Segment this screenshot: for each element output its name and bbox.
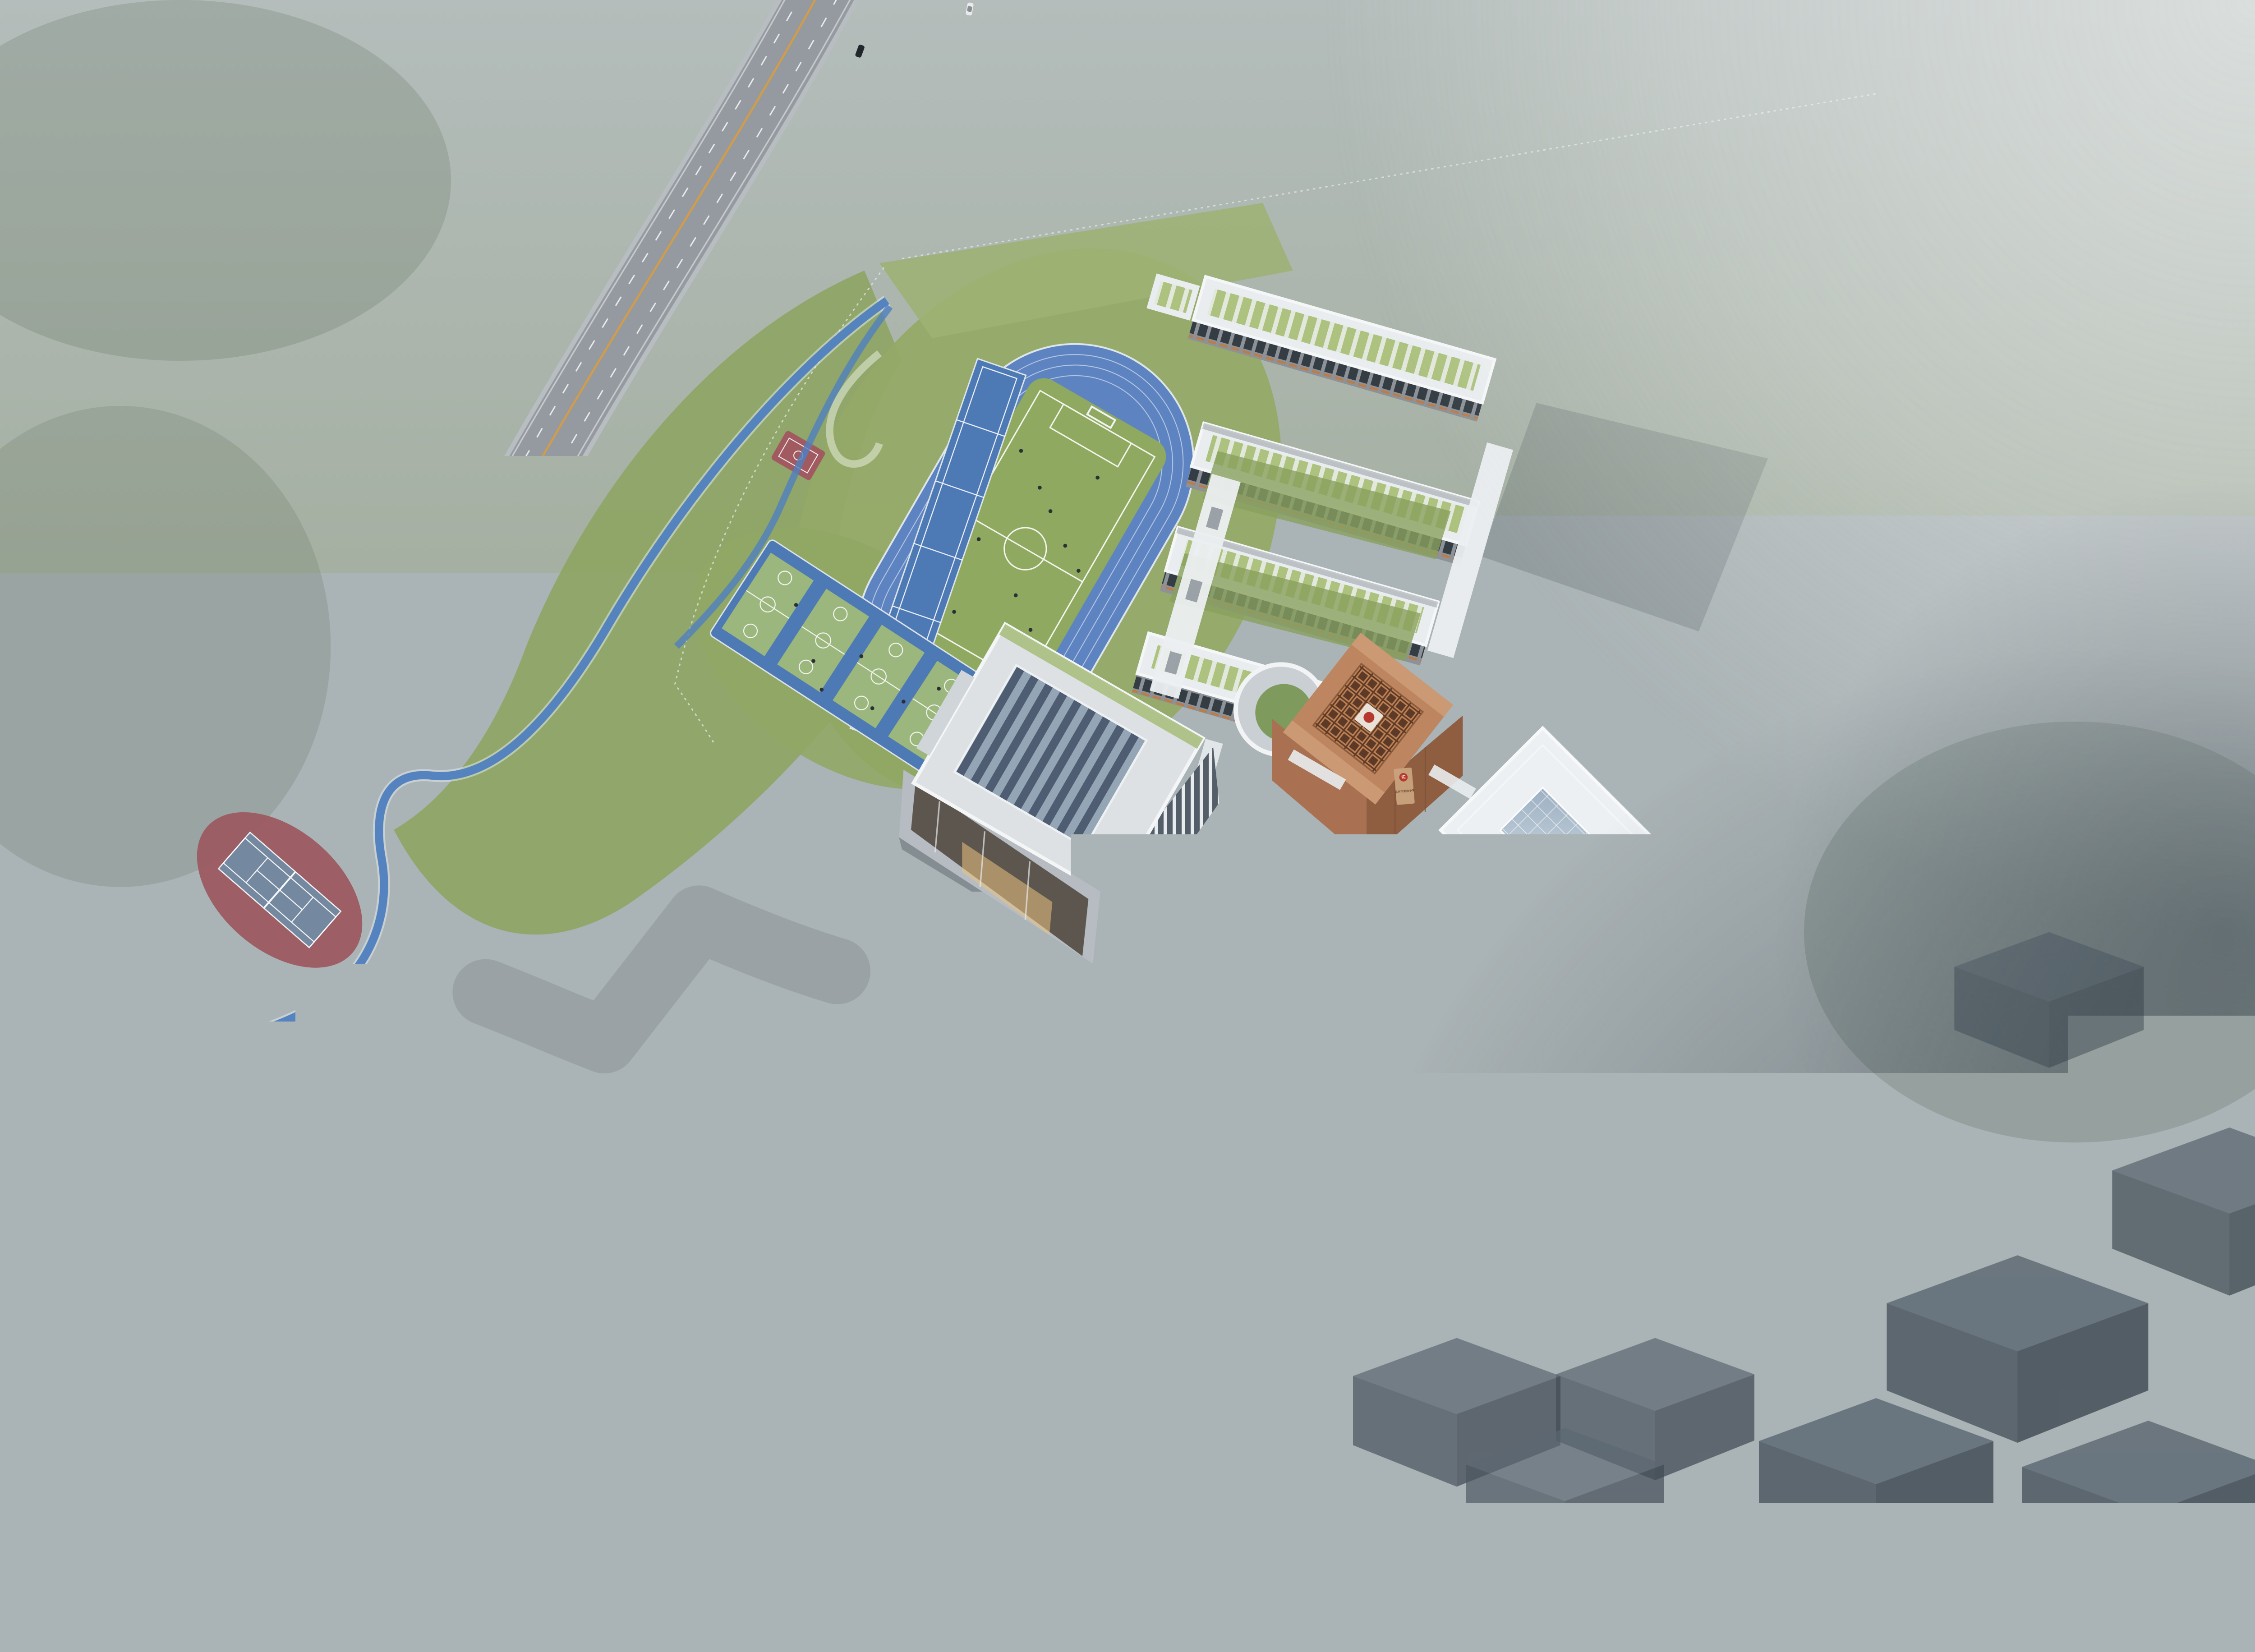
seal-character: 实 xyxy=(1401,774,1406,780)
lens-flare-dot xyxy=(626,107,667,149)
lens-flare-dot xyxy=(713,195,736,219)
rendering-viewport: 实 温州市实验中学 xyxy=(0,0,2255,1503)
aerial-campus-rendering: 实 温州市实验中学 xyxy=(0,0,2255,1503)
